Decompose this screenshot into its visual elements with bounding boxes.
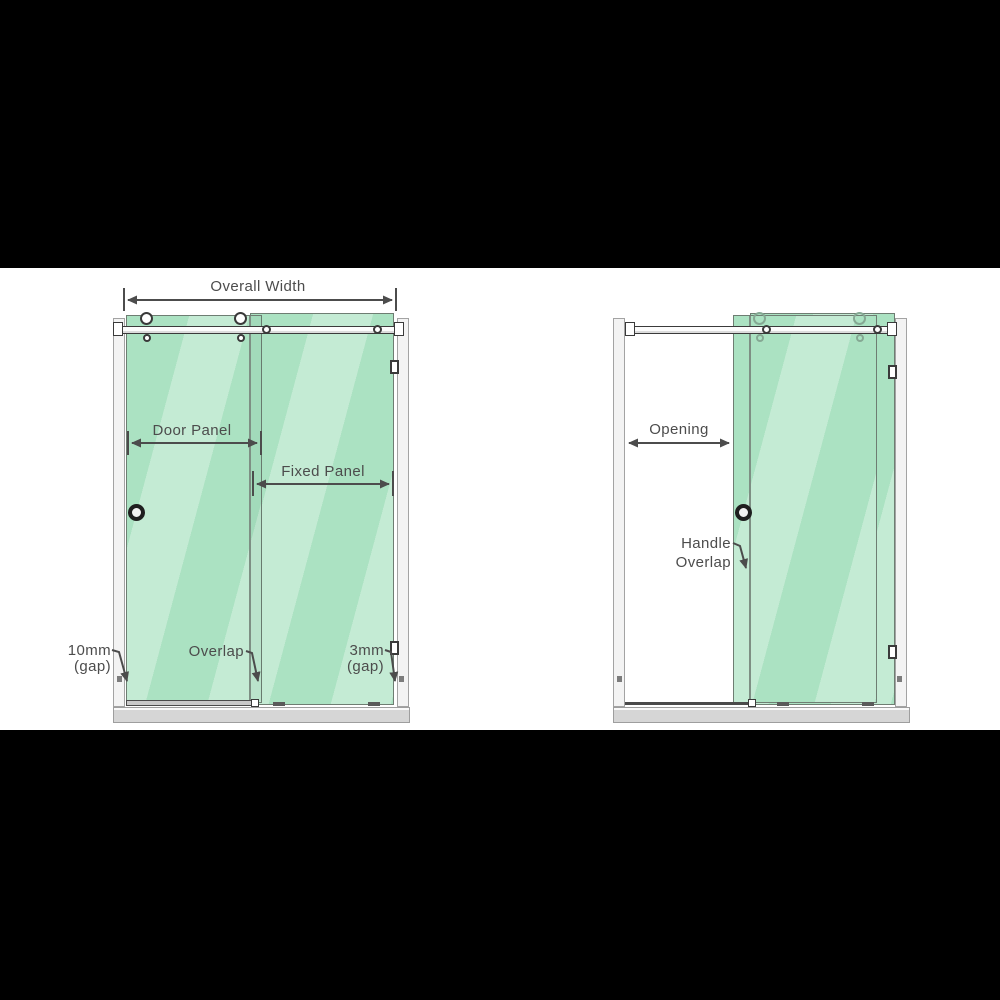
bottom-guide-rail <box>126 700 254 706</box>
shower-screen-diagram: Overall Width Door Panel Fixed Panel 10m… <box>0 0 1000 1000</box>
wall-profile-left <box>613 318 625 707</box>
gap-right-unit: (gap) <box>315 659 384 675</box>
fixed-panel-mount-icon <box>762 325 771 334</box>
rail-bracket-right <box>887 322 897 336</box>
fixed-panel-label: Fixed Panel <box>252 464 394 480</box>
rail-bracket-left <box>625 322 635 336</box>
fixed-panel-mount-icon <box>373 325 382 334</box>
wall-profile-left <box>113 318 125 707</box>
bottom-clamp-icon <box>777 702 789 706</box>
bottom-guide-block <box>251 699 259 707</box>
wall-screw-icon <box>117 676 122 682</box>
top-rail <box>625 326 897 334</box>
roller-stopper-ghost-icon <box>856 334 864 342</box>
bottom-clamp-icon <box>862 702 874 706</box>
rail-bracket-left <box>113 322 123 336</box>
wall-screw-icon <box>897 676 902 682</box>
overlap-label: Overlap <box>155 644 244 660</box>
fixed-panel-mount-icon <box>262 325 271 334</box>
overall-width-label: Overall Width <box>133 279 383 295</box>
door-panel-label: Door Panel <box>121 423 263 439</box>
gap-left-value: 10mm <box>38 643 111 659</box>
rail-bracket-right <box>394 322 404 336</box>
wall-screw-icon <box>399 676 404 682</box>
bottom-clamp-icon <box>273 702 285 706</box>
handle-overlap-label: Handle Overlap <box>636 534 731 572</box>
wall-clamp-icon <box>888 645 897 659</box>
bottom-guide-block <box>748 699 756 707</box>
door-roller-ghost-icon <box>753 312 766 325</box>
door-handle-knob <box>128 504 145 521</box>
door-roller-ghost-icon <box>853 312 866 325</box>
roller-stopper-icon <box>143 334 151 342</box>
wall-clamp-icon <box>888 365 897 379</box>
roller-stopper-ghost-icon <box>756 334 764 342</box>
shower-tray <box>613 707 910 723</box>
wall-clamp-icon <box>390 641 399 655</box>
panel-overlap-shade <box>250 316 262 701</box>
door-roller-icon <box>234 312 247 325</box>
gap-right-value: 3mm <box>315 643 384 659</box>
fixed-panel-edge-line <box>249 316 251 701</box>
fixed-panel-mount-icon <box>873 325 882 334</box>
handle-overlap-line2: Overlap <box>636 553 731 572</box>
door-roller-icon <box>140 312 153 325</box>
handle-overlap-line1: Handle <box>636 534 731 553</box>
door-panel-glass <box>733 315 877 703</box>
bottom-clamp-icon <box>368 702 380 706</box>
gap-right-label: 3mm (gap) <box>315 643 384 675</box>
bottom-guide-rail <box>625 702 752 705</box>
wall-screw-icon <box>617 676 622 682</box>
gap-left-label: 10mm (gap) <box>38 643 111 675</box>
gap-left-unit: (gap) <box>38 659 111 675</box>
wall-clamp-icon <box>390 360 399 374</box>
opening-label: Opening <box>629 422 729 438</box>
top-rail <box>121 326 398 334</box>
door-handle-knob <box>735 504 752 521</box>
shower-tray <box>113 707 410 723</box>
roller-stopper-icon <box>237 334 245 342</box>
